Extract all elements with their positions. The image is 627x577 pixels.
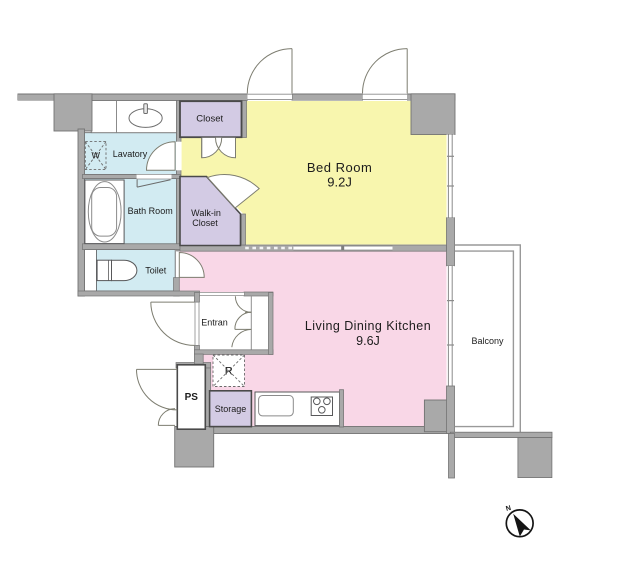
svg-text:Toilet: Toilet (145, 266, 167, 276)
svg-text:Storage: Storage (215, 404, 247, 414)
svg-text:9.2J: 9.2J (327, 175, 352, 190)
svg-text:Closet: Closet (196, 113, 223, 124)
svg-text:Balcony: Balcony (471, 336, 504, 346)
svg-text:Bath Room: Bath Room (128, 206, 173, 216)
svg-text:N: N (505, 505, 512, 513)
svg-text:9.6J: 9.6J (356, 334, 380, 348)
svg-text:Living Dining Kitchen: Living Dining Kitchen (305, 319, 431, 333)
svg-text:W: W (92, 151, 101, 161)
svg-text:Lavatory: Lavatory (113, 149, 148, 159)
svg-text:PS: PS (185, 392, 199, 403)
svg-text:Closet: Closet (192, 218, 218, 228)
svg-text:Bed Room: Bed Room (307, 160, 372, 175)
svg-text:Entran: Entran (201, 318, 228, 328)
svg-text:R: R (225, 366, 233, 378)
svg-text:Walk-in: Walk-in (191, 208, 221, 218)
